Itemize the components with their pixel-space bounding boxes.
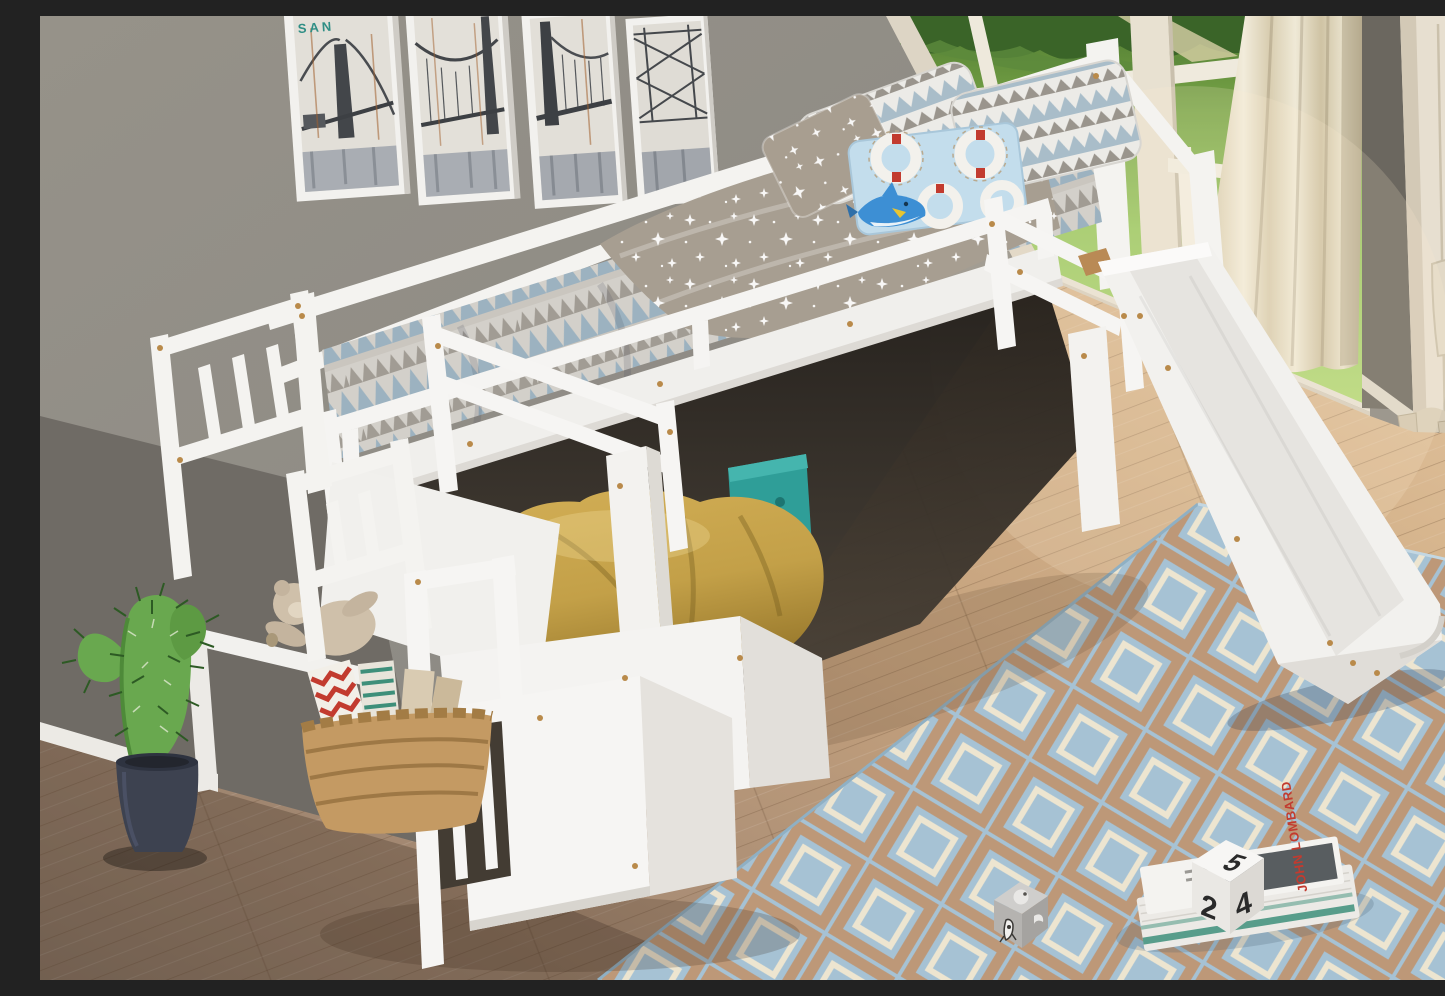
poster-3 xyxy=(521,16,628,209)
plant-pot xyxy=(116,753,198,852)
planet-icon xyxy=(1014,890,1029,905)
wall-art-posters: SAN xyxy=(283,16,720,209)
scene-canvas: SAN xyxy=(40,16,1445,980)
poster-1: SAN xyxy=(283,16,410,202)
product-photo-loft-bed: SAN xyxy=(40,16,1445,980)
die-face-2: 2 xyxy=(1199,888,1219,928)
poster-caption-text: SAN xyxy=(297,19,334,37)
poster-2 xyxy=(405,16,521,205)
